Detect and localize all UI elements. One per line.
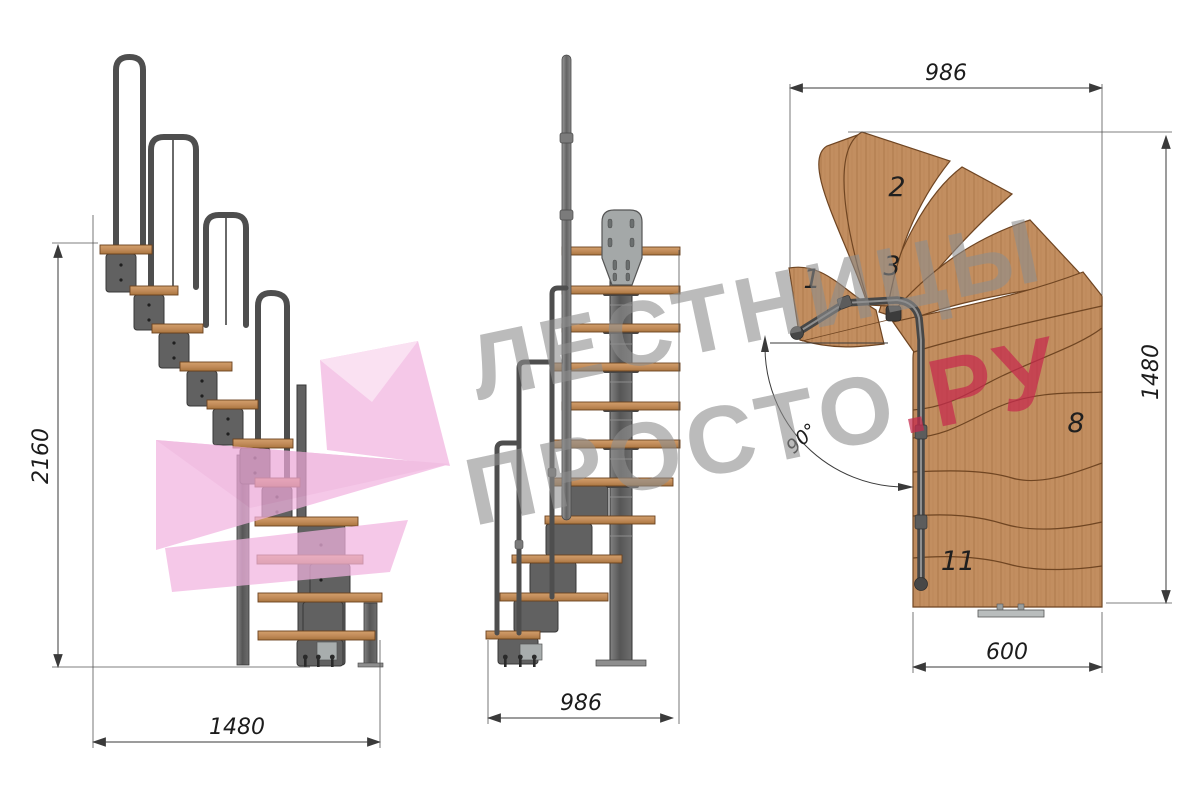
dim-label-986-plan: 986 <box>925 61 967 86</box>
dim-label-600: 600 <box>986 640 1028 665</box>
front-column-base <box>596 660 646 666</box>
drawing-canvas: 2160 1480 <box>0 0 1200 790</box>
dim-label-1480-plan: 1480 <box>1139 344 1164 400</box>
front-mount-plate <box>602 210 642 285</box>
dim-label-2160: 2160 <box>29 428 54 484</box>
tread-number-2: 2 <box>888 172 905 203</box>
staircase-drawing: 2160 1480 <box>0 0 1200 790</box>
dim-label-1480-run: 1480 <box>209 715 265 740</box>
dimension-plan-600: 600 <box>913 612 1102 673</box>
dim-label-986-front: 986 <box>560 691 602 716</box>
tread-number-11: 11 <box>941 546 975 577</box>
side-handrail-balusters <box>173 140 226 325</box>
